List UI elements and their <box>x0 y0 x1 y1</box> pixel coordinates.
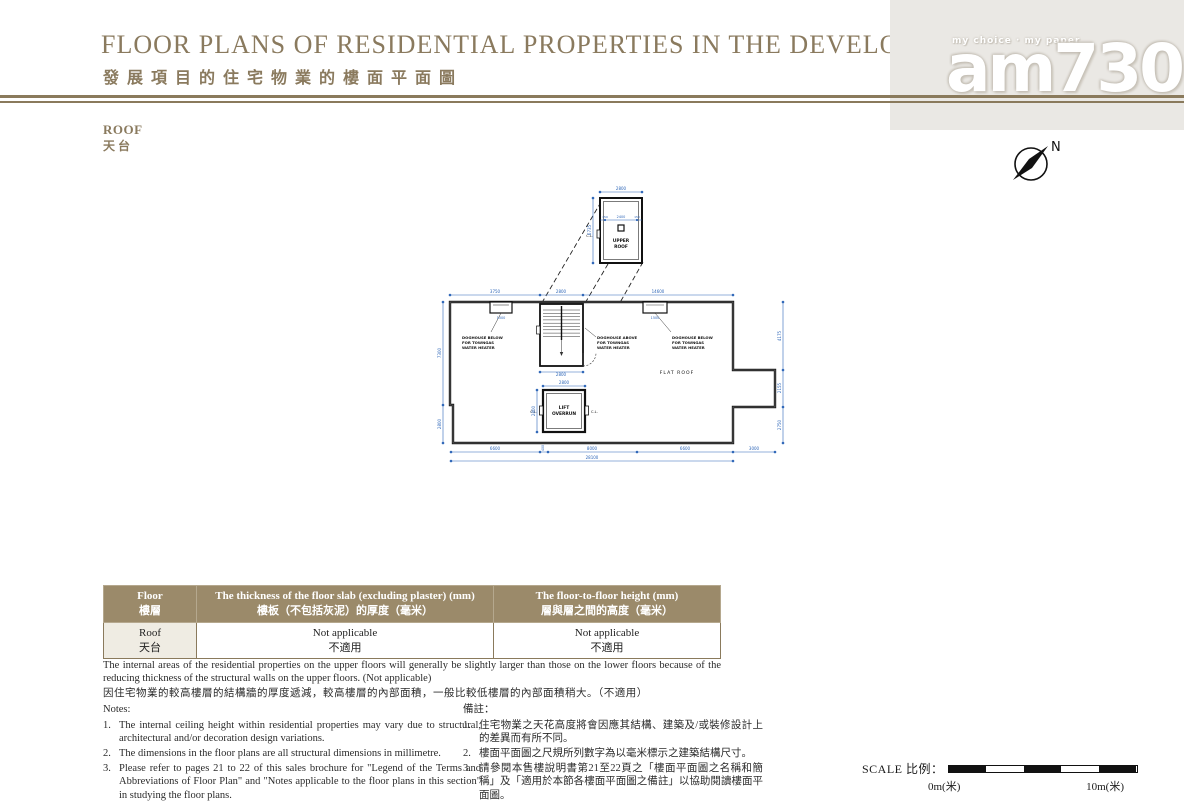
dim-label: 2800 <box>616 186 627 191</box>
scale-bar-graphic <box>948 765 1138 773</box>
dim-label: 1500 <box>497 316 506 320</box>
lift-overrun-label: OVERRUN <box>552 411 576 417</box>
col-header-height-en: The floor-to-floor height (mm) <box>498 589 716 604</box>
note-text: Please refer to pages 21 to 22 of this s… <box>119 762 481 803</box>
floor-label-en: ROOF <box>103 122 143 138</box>
lift-overrun-label: LIFT <box>559 405 569 411</box>
note-item: 3. 請參閱本售樓說明書第21至22頁之「樓面平面圖之名稱和簡稱」及「適用於本節… <box>463 762 763 803</box>
scale-zero-label: 0m(米) <box>928 778 960 794</box>
scale-ten-label: 10m(米) <box>1086 778 1124 794</box>
internal-areas-paragraph-zh: 因住宅物業的較高樓層的結構牆的厚度遞減，較高樓層的內部面積，一般比較低樓層的內部… <box>103 687 721 700</box>
roof-outline <box>450 302 775 443</box>
cat-ladder-label: C.L. <box>591 410 598 414</box>
dim-label: 2800 <box>556 289 567 294</box>
col-header-height-zh: 層與層之間的高度（毫米） <box>498 604 716 619</box>
dim-label: 3750 <box>490 289 501 294</box>
notes-zh-heading: 備註： <box>463 703 763 717</box>
roof-floor-plan: UPPER ROOF C.L. 1500 1500 <box>425 180 805 480</box>
dim-label: 8000 <box>587 446 598 451</box>
notes-en-heading: Notes: <box>103 703 481 717</box>
note-number: 1. <box>463 719 479 746</box>
scale-segment <box>1099 766 1137 772</box>
page-title-chinese: 發展項目的住宅物業的樓面平面圖 <box>103 64 463 88</box>
dim-label: 6600 <box>490 446 501 451</box>
dim-label: 4175 <box>777 330 782 341</box>
north-arrow-icon: N <box>1005 134 1069 190</box>
cell-floor-en: Roof <box>108 626 192 641</box>
note-number: 3. <box>103 762 119 803</box>
upper-roof-label: UPPER <box>613 238 630 244</box>
note-text: 樓面平面圖之尺規所列數字為以毫米標示之建築結構尺寸。 <box>479 747 763 761</box>
dim-label: 2400 <box>617 215 626 219</box>
table-header-row: Floor 樓層 The thickness of the floor slab… <box>104 586 721 623</box>
dim-label: 3000 <box>749 446 760 451</box>
dim-label: 28100 <box>586 455 599 460</box>
cell-thickness-en: Not applicable <box>201 626 489 641</box>
note-number: 1. <box>103 719 119 746</box>
dim-label: 400 <box>541 445 545 451</box>
internal-areas-paragraph: The internal areas of the residential pr… <box>103 659 721 700</box>
dim-label: 2800 <box>559 380 570 385</box>
scale-segment <box>986 766 1024 772</box>
doghouse-above-label: WATER HEATER <box>597 345 630 350</box>
floor-label-zh: 天台 <box>103 137 133 154</box>
dim-label: 2155 <box>777 382 782 393</box>
note-text: The dimensions in the floor plans are al… <box>119 747 481 761</box>
col-header-floor-zh: 樓層 <box>108 604 192 619</box>
north-label: N <box>1051 140 1061 155</box>
note-text: 住宅物業之天花高度將會因應其結構、建築及/或裝修設計上的差異而有所不同。 <box>479 719 763 746</box>
cell-thickness-zh: 不適用 <box>201 641 489 656</box>
floor-spec-table: Floor 樓層 The thickness of the floor slab… <box>103 585 721 659</box>
scale-segment <box>1061 766 1099 772</box>
cell-floor: Roof 天台 <box>104 622 197 659</box>
note-number: 3. <box>463 762 479 803</box>
internal-areas-paragraph-en: The internal areas of the residential pr… <box>103 659 721 685</box>
col-header-thickness: The thickness of the floor slab (excludi… <box>197 586 494 623</box>
notes-chinese: 備註： 1. 住宅物業之天花高度將會因應其結構、建築及/或裝修設計上的差異而有所… <box>463 703 763 803</box>
dim-label: 150 <box>602 215 608 219</box>
cell-floor-zh: 天台 <box>108 641 192 656</box>
dim-label: 14600 <box>652 289 665 294</box>
dim-label: 7300 <box>437 347 442 358</box>
scale-label: SCALE 比例： <box>862 760 944 777</box>
dim-label: 2800 <box>437 418 442 429</box>
cell-height-en: Not applicable <box>498 626 716 641</box>
brochure-page: FLOOR PLANS OF RESIDENTIAL PROPERTIES IN… <box>0 0 1184 805</box>
col-header-floor: Floor 樓層 <box>104 586 197 623</box>
cell-height-zh: 不適用 <box>498 641 716 656</box>
upper-roof-structure: UPPER ROOF C.L. <box>586 198 642 263</box>
dim-label: 2750 <box>777 419 782 430</box>
dim-label: 150 <box>634 215 640 219</box>
note-text: 請參閱本售樓說明書第21至22頁之「樓面平面圖之名稱和簡稱」及「適用於本節各樓面… <box>479 762 763 803</box>
cell-height: Not applicable 不適用 <box>494 622 721 659</box>
note-number: 2. <box>103 747 119 761</box>
doghouse-below-label: WATER HEATER <box>462 345 495 350</box>
note-text: The internal ceiling height within resid… <box>119 719 481 746</box>
dim-label: 2800 <box>556 372 567 377</box>
am730-logo: am730 <box>946 30 1182 107</box>
col-header-thickness-zh: 樓板（不包括灰泥）的厚度（毫米） <box>201 604 489 619</box>
dim-label: 1500 <box>651 316 660 320</box>
dim-label: 6600 <box>680 446 691 451</box>
table-row-roof: Roof 天台 Not applicable 不適用 Not applicabl… <box>104 622 721 659</box>
upper-roof-label: ROOF <box>614 244 628 250</box>
col-header-height: The floor-to-floor height (mm) 層與層之間的高度（… <box>494 586 721 623</box>
col-header-thickness-en: The thickness of the floor slab (excludi… <box>201 589 489 604</box>
scale-segment <box>1024 766 1062 772</box>
col-header-floor-en: Floor <box>108 589 192 604</box>
dim-label: 2800 <box>531 405 536 416</box>
scale-bar: SCALE 比例： 0m(米) 10m(米) <box>862 760 1138 791</box>
note-item: 1. The internal ceiling height within re… <box>103 719 481 746</box>
dim-label: 6735 <box>587 224 592 235</box>
note-item: 2. 樓面平面圖之尺規所列數字為以毫米標示之建築結構尺寸。 <box>463 747 763 761</box>
note-item: 3. Please refer to pages 21 to 22 of thi… <box>103 762 481 803</box>
note-item: 2. The dimensions in the floor plans are… <box>103 747 481 761</box>
cell-thickness: Not applicable 不適用 <box>197 622 494 659</box>
notes-english: Notes: 1. The internal ceiling height wi… <box>103 703 481 803</box>
page-title: FLOOR PLANS OF RESIDENTIAL PROPERTIES IN… <box>101 30 993 60</box>
note-number: 2. <box>463 747 479 761</box>
scale-segment <box>949 766 987 772</box>
note-item: 1. 住宅物業之天花高度將會因應其結構、建築及/或裝修設計上的差異而有所不同。 <box>463 719 763 746</box>
doghouse-below-label: WATER HEATER <box>672 345 705 350</box>
flat-roof-label: FLAT ROOF <box>660 370 694 376</box>
